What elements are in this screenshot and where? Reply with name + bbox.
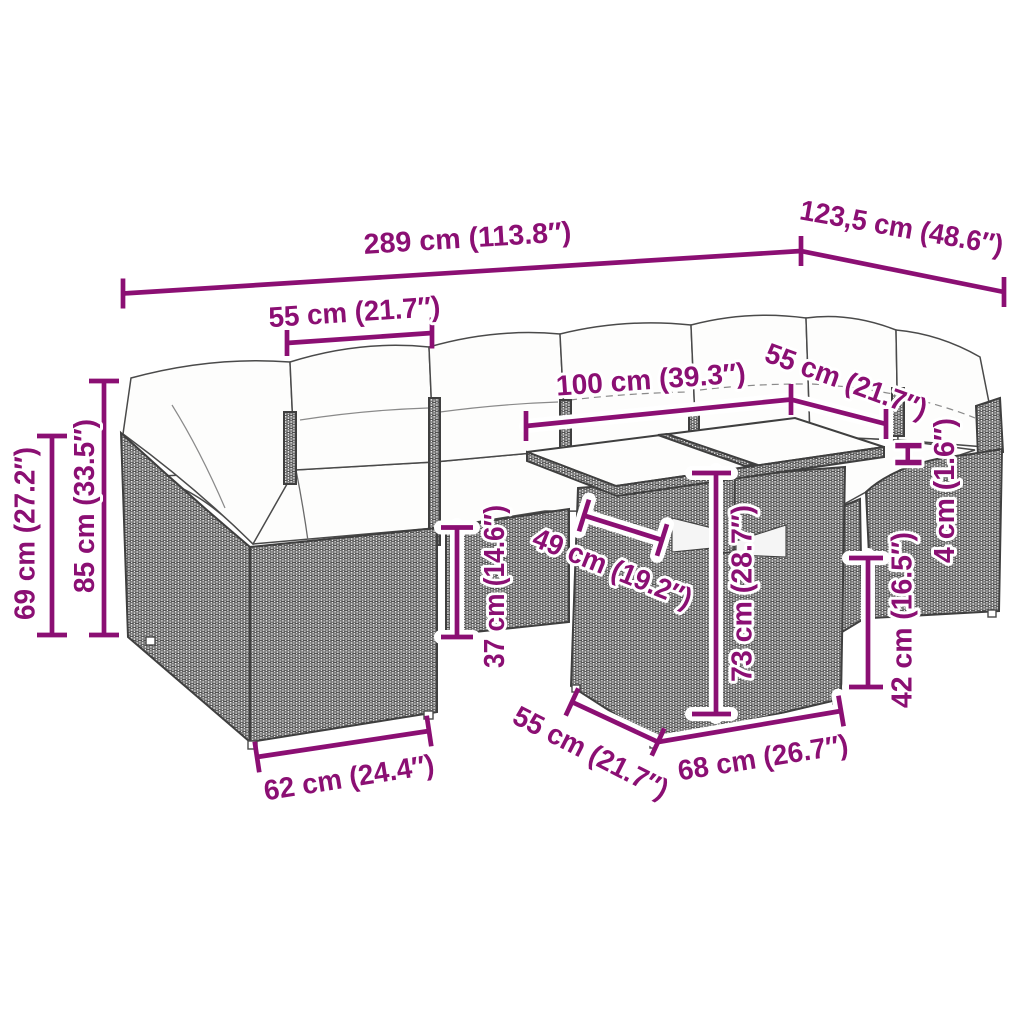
svg-text:H: H (889, 440, 931, 467)
svg-text:37 cm (14.6″): 37 cm (14.6″) (479, 505, 511, 668)
svg-text:42 cm (16.5″): 42 cm (16.5″) (887, 532, 919, 708)
svg-text:73 cm (28.7″): 73 cm (28.7″) (727, 505, 759, 682)
svg-text:85 cm (33.5″): 85 cm (33.5″) (69, 419, 101, 593)
svg-text:69 cm (27.2″): 69 cm (27.2″) (10, 447, 42, 620)
svg-text:4 cm (1.6″): 4 cm (1.6″) (929, 418, 961, 563)
